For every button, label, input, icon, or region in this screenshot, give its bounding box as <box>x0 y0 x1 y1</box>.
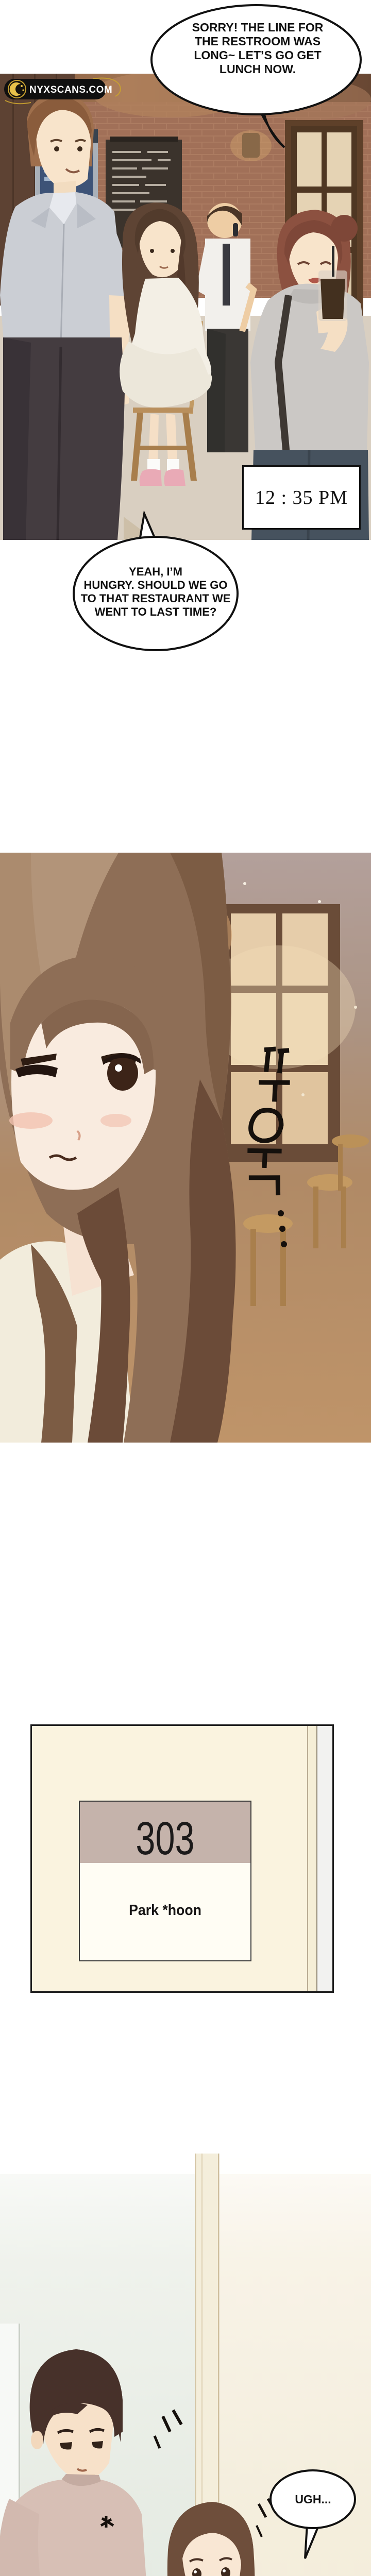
svg-text:NYXSCANS.COM: NYXSCANS.COM <box>29 84 112 95</box>
